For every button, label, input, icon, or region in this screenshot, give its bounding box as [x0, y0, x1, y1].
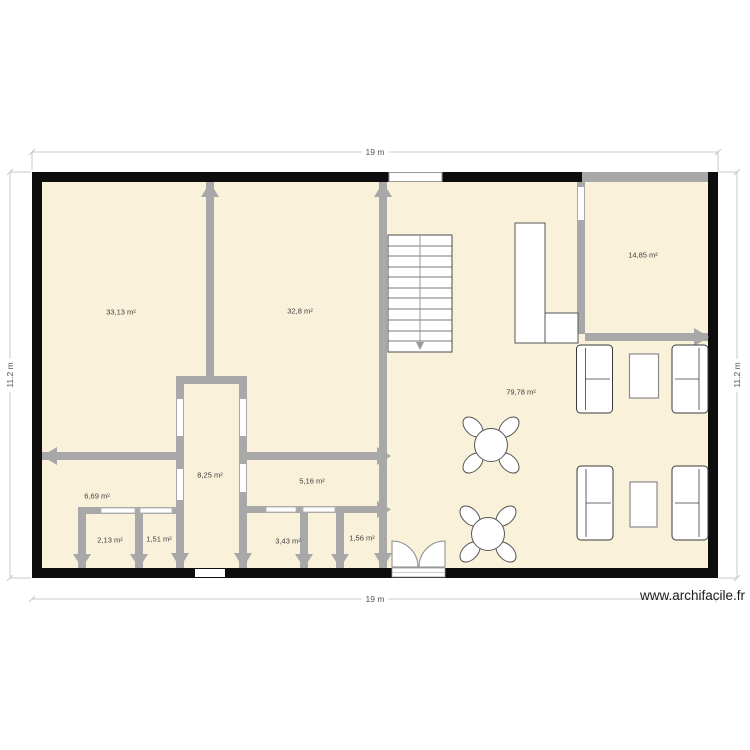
- sofa[interactable]: [577, 345, 613, 413]
- outer-wall-right[interactable]: [708, 172, 718, 578]
- dimension-label-left: 11.2 m: [5, 358, 15, 391]
- door-opening[interactable]: [578, 187, 584, 220]
- room-area-label: 5,16 m²: [299, 477, 324, 486]
- room-area-label: 33,13 m²: [106, 308, 136, 317]
- door-opening-bottom[interactable]: [195, 569, 225, 577]
- coffee-table[interactable]: [630, 354, 659, 398]
- window-top[interactable]: [389, 173, 442, 182]
- top-right-gray-wall[interactable]: [582, 172, 708, 182]
- door-opening[interactable]: [303, 507, 335, 512]
- room-area-label: 6,69 m²: [84, 492, 109, 501]
- door-opening[interactable]: [240, 399, 246, 436]
- staircase[interactable]: [388, 235, 452, 352]
- door-opening[interactable]: [177, 399, 183, 436]
- floor-plan-page: 33,13 m² 32,8 m² 14,85 m² 79,78 m² 8,25 …: [0, 0, 750, 750]
- room-area-label: 3,43 m²: [275, 537, 300, 546]
- room-area-label: 2,13 m²: [97, 536, 122, 545]
- floor-plan-drawing: [0, 0, 750, 750]
- room-area-label: 8,25 m²: [197, 471, 222, 480]
- round-table[interactable]: [472, 518, 505, 551]
- wall-suite-horizontal[interactable]: [585, 333, 708, 341]
- room-area-label: 1,51 m²: [146, 535, 171, 544]
- door-opening[interactable]: [177, 469, 183, 500]
- door-opening[interactable]: [101, 508, 135, 513]
- sofa[interactable]: [577, 466, 613, 540]
- door-opening[interactable]: [240, 464, 246, 492]
- wall-corridor-top[interactable]: [176, 376, 247, 384]
- sofa[interactable]: [672, 345, 708, 413]
- wall-left-horizontal[interactable]: [42, 452, 184, 460]
- sofa[interactable]: [672, 466, 708, 540]
- door-opening[interactable]: [266, 507, 296, 512]
- dimension-label-bottom: 19 m: [362, 594, 389, 604]
- room-area-label: 1,56 m²: [349, 534, 374, 543]
- door-opening[interactable]: [140, 508, 172, 513]
- room-area-label: 32,8 m²: [287, 307, 312, 316]
- dimension-label-right: 11.2 m: [732, 358, 742, 391]
- coffee-table[interactable]: [630, 482, 657, 527]
- round-table[interactable]: [475, 429, 508, 462]
- outer-wall-left[interactable]: [32, 172, 42, 578]
- wall-center-vertical[interactable]: [206, 182, 214, 376]
- archifacile-watermark: www.archifacile.fr: [640, 588, 745, 603]
- wall-right-horizontal[interactable]: [239, 452, 387, 460]
- room-area-label: 14,85 m²: [628, 251, 658, 260]
- dimension-label-top: 19 m: [362, 147, 389, 157]
- room-area-label: 79,78 m²: [506, 388, 536, 397]
- outer-wall-bottom[interactable]: [32, 568, 718, 578]
